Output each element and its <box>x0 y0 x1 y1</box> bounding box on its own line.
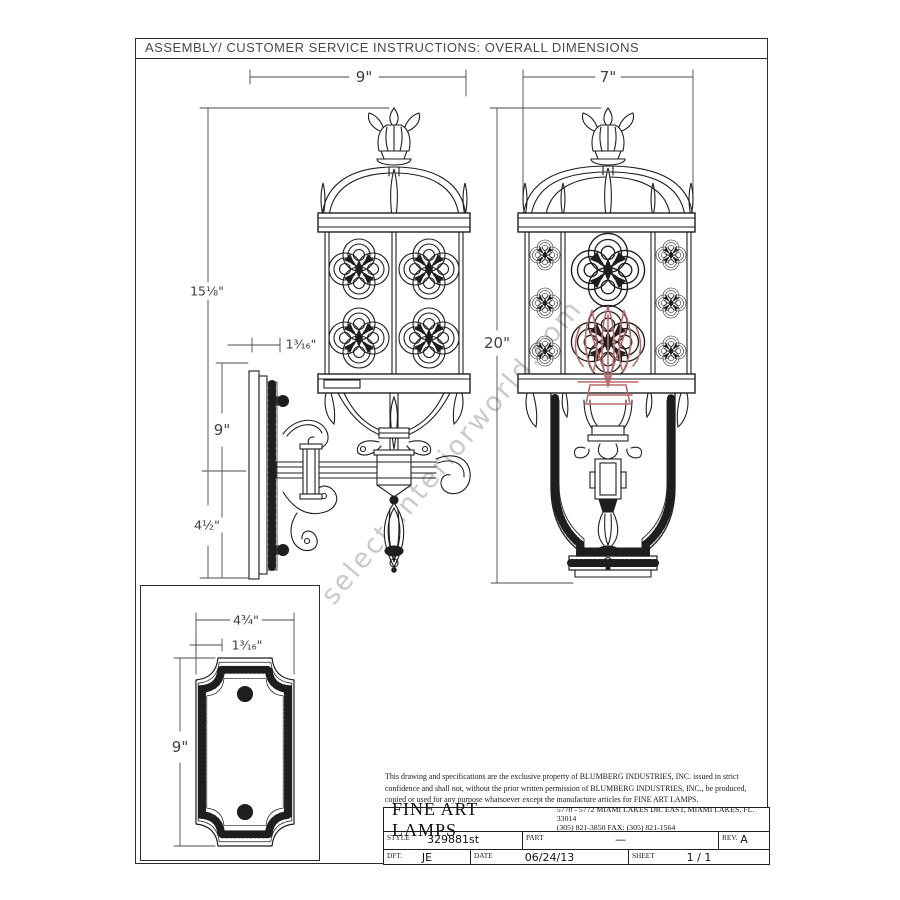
rev-value: A <box>719 833 769 846</box>
dim-side-backplate-height: 9" <box>211 421 233 439</box>
dim-side-height: 15⅛" <box>187 284 227 299</box>
sheet-value: 1 / 1 <box>629 851 769 864</box>
rev-cell: REV. A <box>719 832 769 849</box>
date-value: 06/24/13 <box>471 851 628 864</box>
dft-cell: DFT. JE <box>384 850 471 864</box>
title-block-date-row: DFT. JE DATE 06/24/13 SHEET 1 / 1 <box>384 850 769 864</box>
dim-plate-width: 4¾" <box>230 613 262 628</box>
sheet-title: ASSEMBLY/ CUSTOMER SERVICE INSTRUCTIONS:… <box>145 40 639 55</box>
dim-side-wall-offset: 1³⁄₁₆" <box>283 337 320 352</box>
dim-plate-hole-offset: 1³⁄₁₆" <box>229 638 266 653</box>
style-cell: STYLE 329881st <box>384 832 523 849</box>
legal-line: This drawing and specifications are the … <box>385 771 768 783</box>
title-block: FINE ART LAMPS 5770 - 5772 MIAMI LAKES D… <box>383 807 770 865</box>
dim-side-lower-height: 4½" <box>191 518 223 533</box>
dim-front-height: 20" <box>481 334 513 352</box>
legal-line: confidence and shall not, without the pr… <box>385 783 768 795</box>
part-value: — <box>523 833 718 846</box>
style-value: 329881st <box>384 833 522 846</box>
dim-plate-height: 9" <box>169 738 191 756</box>
dim-side-width: 9" <box>353 68 375 86</box>
date-cell: DATE 06/24/13 <box>471 850 629 864</box>
dim-front-width: 7" <box>597 68 619 86</box>
sheet-cell: SHEET 1 / 1 <box>629 850 769 864</box>
title-block-style-row: STYLE 329881st PART — REV. A <box>384 832 769 850</box>
company-address: 5770 - 5772 MIAMI LAKES DR. EAST, MIAMI … <box>557 806 769 832</box>
sheet-header: ASSEMBLY/ CUSTOMER SERVICE INSTRUCTIONS:… <box>135 38 768 59</box>
drawing-sheet: select-interiorworld.com <box>0 0 900 900</box>
address-line-1: 5770 - 5772 MIAMI LAKES DR. EAST, MIAMI … <box>557 806 769 824</box>
part-cell: PART — <box>523 832 719 849</box>
dft-value: JE <box>384 851 470 864</box>
title-block-company-row: FINE ART LAMPS 5770 - 5772 MIAMI LAKES D… <box>384 808 769 832</box>
